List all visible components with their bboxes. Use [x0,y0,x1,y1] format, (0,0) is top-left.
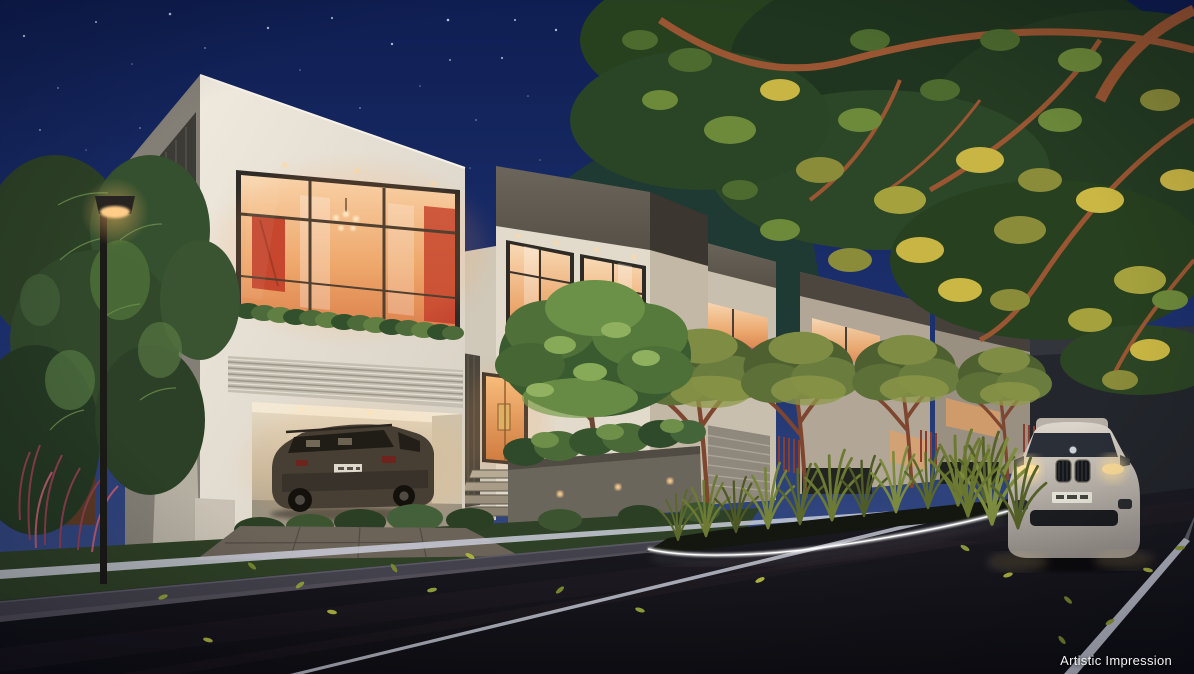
architectural-night-render: Artistic Impression [0,0,1194,674]
artistic-impression-caption: Artistic Impression [1060,653,1172,668]
vignette [0,0,1194,674]
render-scene [0,0,1194,674]
